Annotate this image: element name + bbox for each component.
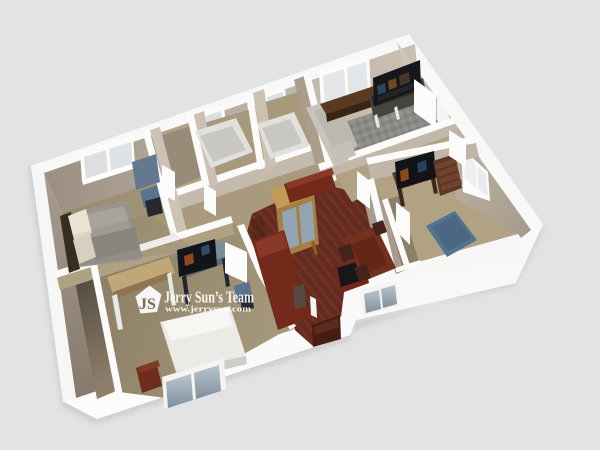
svg-text:www.jerrysun.com: www.jerrysun.com	[165, 305, 251, 314]
svg-text:JS: JS	[139, 296, 156, 313]
